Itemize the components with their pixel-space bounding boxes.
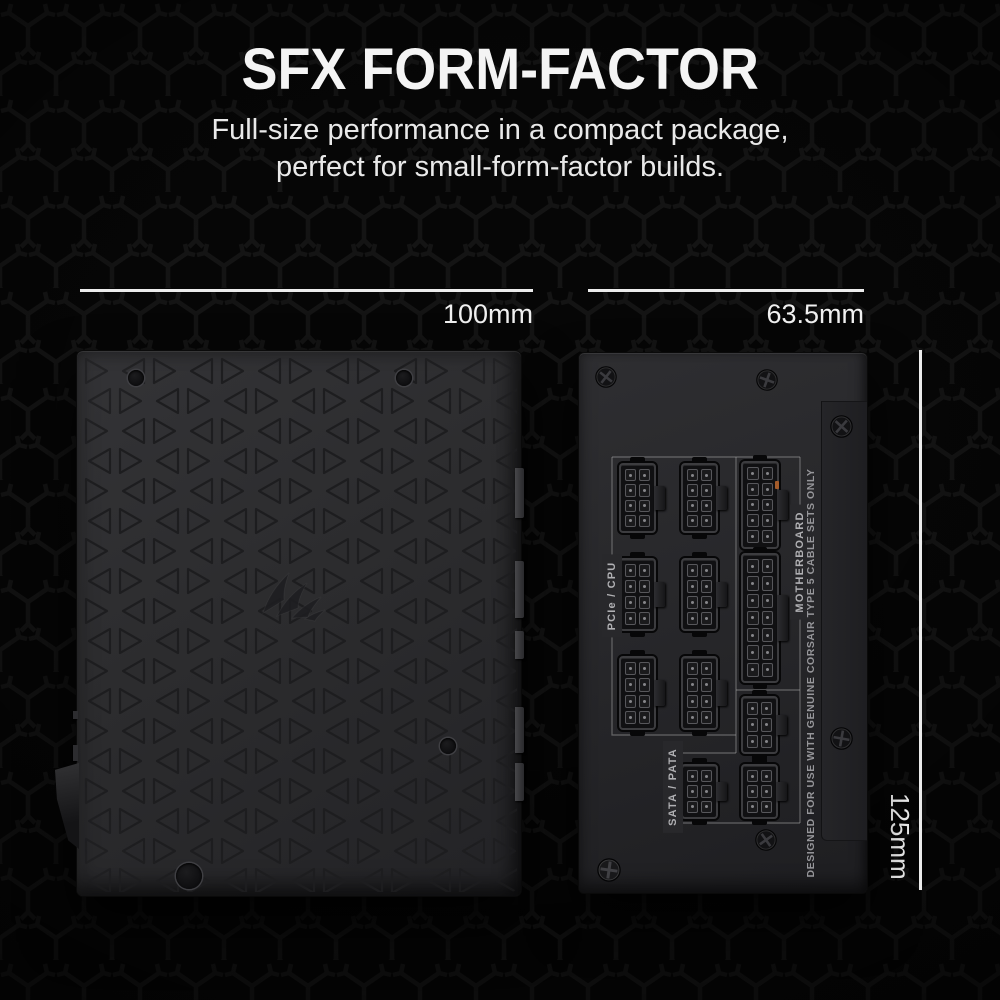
connector-pin (625, 469, 636, 481)
connector-pin (639, 564, 650, 577)
connector-pin (762, 530, 774, 543)
connector-pin (761, 735, 772, 748)
corsair-sails-logo-icon (257, 561, 329, 625)
connector-pin (747, 645, 759, 659)
connector-pin (747, 611, 759, 625)
connector-clip-tab (777, 595, 788, 640)
connector-pin (701, 515, 712, 527)
connector-latch-nub (692, 631, 707, 637)
connector-pin (687, 678, 698, 691)
connector-pin (639, 580, 650, 593)
connector-pin (701, 678, 712, 691)
connector-pin (625, 711, 636, 724)
connector-latch-nub (692, 819, 707, 825)
subtitle-line-2: perfect for small-form-factor builds. (0, 149, 1000, 186)
connector-pin (625, 678, 636, 691)
connector-clip-tab (654, 582, 665, 607)
connector-pcie-cpu-8pin-4 (681, 558, 718, 631)
side-connector-tab (515, 561, 524, 618)
connector-pin (762, 467, 774, 480)
connector-pin (639, 662, 650, 675)
width-dimension-line (80, 289, 533, 292)
connector-pin (687, 711, 698, 724)
connector-pin (687, 500, 698, 512)
connector-pin (639, 695, 650, 708)
psu-side-connectors (579, 353, 867, 893)
connector-pin (761, 785, 772, 797)
connector-clip-tab (716, 680, 727, 705)
connector-pin (762, 611, 774, 625)
screw-hole (128, 370, 144, 386)
connector-pin (687, 484, 698, 496)
connector-pin (747, 576, 759, 590)
screw-hole (440, 738, 456, 754)
connector-pin (747, 628, 759, 642)
connector-latch-nub (630, 650, 645, 656)
sata-pata-group-label: SATA / PATA (663, 741, 683, 833)
connector-pin (639, 596, 650, 609)
connector-pin (625, 564, 636, 577)
side-connector-tab (515, 468, 524, 518)
connector-pin (762, 514, 774, 527)
connector-pin (701, 596, 712, 609)
connector-latch-nub (630, 533, 645, 539)
connector-pcie-cpu-8pin-3 (619, 558, 656, 631)
connector-pin (762, 628, 774, 642)
connector-pin (747, 594, 759, 608)
connector-pin (687, 770, 698, 782)
connector-latch-nub (692, 650, 707, 656)
screw-hole (396, 370, 412, 386)
connector-pin (747, 530, 759, 543)
connector-pin (625, 484, 636, 496)
connector-clip-tab (777, 490, 788, 520)
connector-pcie-cpu-8pin-1 (619, 463, 656, 533)
connector-pin (701, 564, 712, 577)
phillips-screw-icon (755, 368, 779, 392)
connector-key-glint (775, 481, 779, 489)
connector-pcie-cpu-8pin-6 (681, 656, 718, 730)
connector-pin (701, 469, 712, 481)
product-dimension-diagram: SFX FORM-FACTOR Full-size performance in… (0, 0, 1000, 1000)
connector-pin (701, 662, 712, 675)
connector-pin (687, 580, 698, 593)
connector-pin (747, 785, 758, 797)
connector-pin (747, 735, 758, 748)
connector-clip-tab (776, 782, 787, 800)
connector-pin (761, 718, 772, 731)
depth-dimension-line (588, 289, 864, 292)
connector-clip-tab (654, 680, 665, 705)
connector-pin (747, 559, 759, 573)
connector-sata-pata-6pin-2 (741, 764, 778, 819)
connector-pin (687, 564, 698, 577)
psu-top-view (76, 350, 522, 897)
connector-pin (701, 612, 712, 625)
connector-pin (701, 785, 712, 797)
connector-pin (747, 663, 759, 677)
connector-pin (625, 596, 636, 609)
connector-pin (639, 469, 650, 481)
connector-pin (625, 662, 636, 675)
connector-pin (639, 711, 650, 724)
cable-warning-text: DESIGNED FOR USE WITH GENUINE CORSAIR TY… (805, 469, 817, 878)
connector-clip-tab (716, 782, 727, 800)
connector-pin (747, 499, 759, 512)
connector-pin (762, 576, 774, 590)
width-dimension-label: 100mm (80, 299, 533, 330)
connector-latch-nub (692, 552, 707, 558)
connector-pin (747, 702, 758, 715)
connector-pin (762, 663, 774, 677)
connector-pin (625, 500, 636, 512)
connector-latch-nub (692, 533, 707, 539)
phillips-screw-icon (829, 726, 854, 751)
connector-latch-nub (753, 683, 768, 689)
phillips-screw-icon (594, 365, 618, 389)
connector-pin (687, 469, 698, 481)
connector-latch-nub (630, 631, 645, 637)
connector-motherboard-6pin (741, 696, 778, 754)
connector-clip-tab (716, 582, 727, 607)
connector-pin (761, 770, 772, 782)
psu-side-view: PCIe / CPU MOTHERBOARD SATA / PATA DESIG… (578, 352, 868, 894)
connector-pin (701, 770, 712, 782)
connector-latch-nub (692, 758, 707, 764)
page-title: SFX FORM-FACTOR (0, 36, 1000, 103)
connector-pin (701, 711, 712, 724)
connector-pin (687, 785, 698, 797)
connector-pin (687, 596, 698, 609)
side-connector-tab (515, 707, 524, 753)
connector-pin (639, 612, 650, 625)
connector-pin (761, 702, 772, 715)
connector-clip-tab (776, 715, 787, 734)
connector-latch-nub (630, 457, 645, 463)
connector-clip-tab (654, 486, 665, 510)
connector-pin (747, 483, 759, 496)
height-dimension-label: 125mm (884, 793, 915, 880)
connector-pin (762, 499, 774, 512)
connector-pin (747, 514, 759, 527)
connector-pin (625, 695, 636, 708)
depth-dimension-label: 63.5mm (588, 299, 864, 330)
phillips-screw-icon (596, 857, 622, 883)
connector-latch-nub (692, 730, 707, 736)
connector-motherboard-14pin (741, 553, 779, 683)
connector-latch-nub (753, 547, 768, 553)
connector-pin (762, 559, 774, 573)
height-dimension-line (919, 350, 922, 890)
connector-pcie-cpu-8pin-5 (619, 656, 656, 730)
connector-pin (625, 580, 636, 593)
connector-pin (687, 515, 698, 527)
connector-pin (687, 662, 698, 675)
page-subtitle: Full-size performance in a compact packa… (0, 112, 1000, 186)
connector-pin (761, 801, 772, 813)
connector-motherboard-10pin (741, 461, 779, 549)
connector-latch-nub (752, 819, 767, 825)
connector-latch-nub (752, 758, 767, 764)
connector-pin (639, 500, 650, 512)
connector-pin (747, 467, 759, 480)
psu-left-edge-notch (73, 745, 78, 761)
connector-pin (701, 580, 712, 593)
connector-latch-nub (630, 730, 645, 736)
phillips-screw-icon (754, 828, 778, 852)
phillips-screw-icon (829, 414, 854, 439)
connector-latch-nub (752, 690, 767, 696)
connector-pin (639, 484, 650, 496)
pcie-cpu-group-label: PCIe / CPU (602, 555, 622, 638)
connector-pin (747, 718, 758, 731)
connector-pin (687, 801, 698, 813)
side-connector-tab (515, 763, 524, 801)
connector-pin (639, 678, 650, 691)
subtitle-line-1: Full-size performance in a compact packa… (0, 112, 1000, 149)
fan-screw-hole (176, 863, 202, 889)
psu-left-edge-notch (73, 711, 78, 719)
connector-latch-nub (630, 552, 645, 558)
connector-latch-nub (692, 457, 707, 463)
connector-pin (747, 801, 758, 813)
connector-pin (625, 612, 636, 625)
connector-pcie-cpu-8pin-2 (681, 463, 718, 533)
side-connector-tab (515, 631, 524, 659)
connector-pin (625, 515, 636, 527)
connector-pin (701, 500, 712, 512)
connector-pin (639, 515, 650, 527)
connector-pin (701, 484, 712, 496)
connector-pin (762, 483, 774, 496)
connector-pin (747, 770, 758, 782)
connector-pin (687, 695, 698, 708)
connector-pin (762, 594, 774, 608)
connector-pin (687, 612, 698, 625)
connector-sata-pata-6pin-1 (681, 764, 718, 819)
connector-pin (701, 801, 712, 813)
connector-pin (762, 645, 774, 659)
connector-pin (701, 695, 712, 708)
connector-clip-tab (716, 486, 727, 510)
connector-latch-nub (753, 455, 768, 461)
